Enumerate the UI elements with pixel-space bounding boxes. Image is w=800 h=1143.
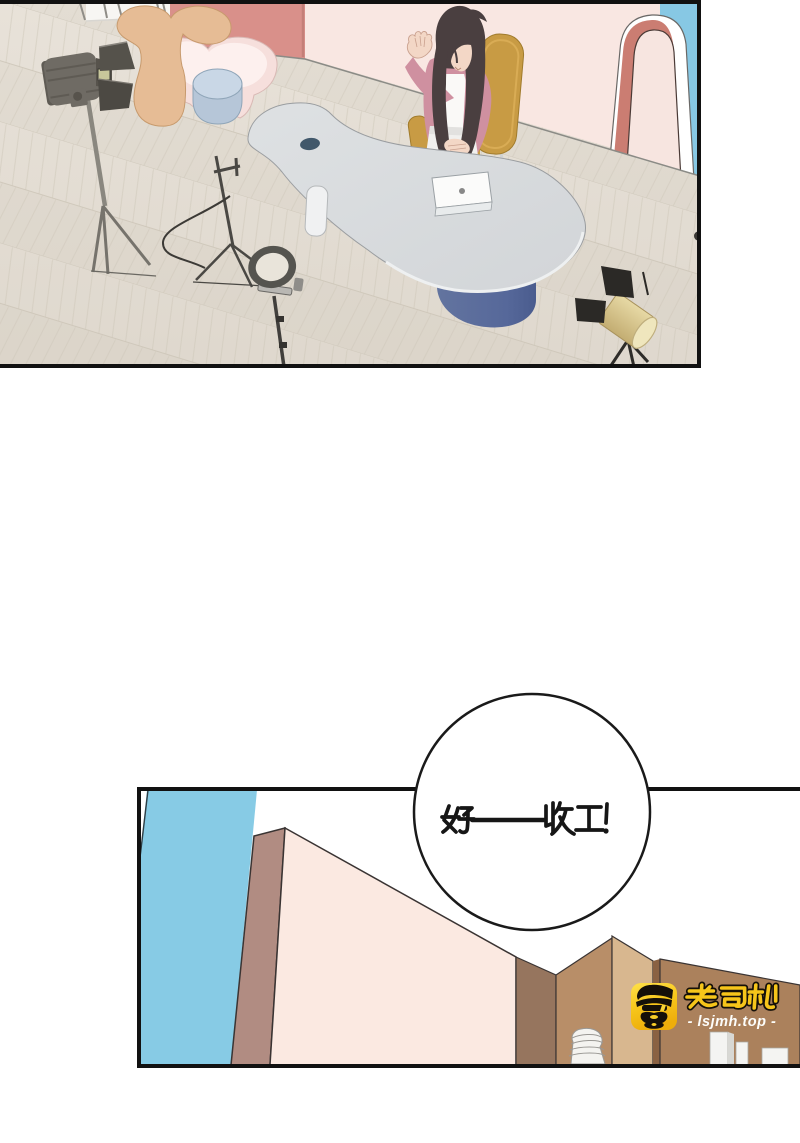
svg-text:- lsjmh.top -: - lsjmh.top - [688,1014,777,1030]
